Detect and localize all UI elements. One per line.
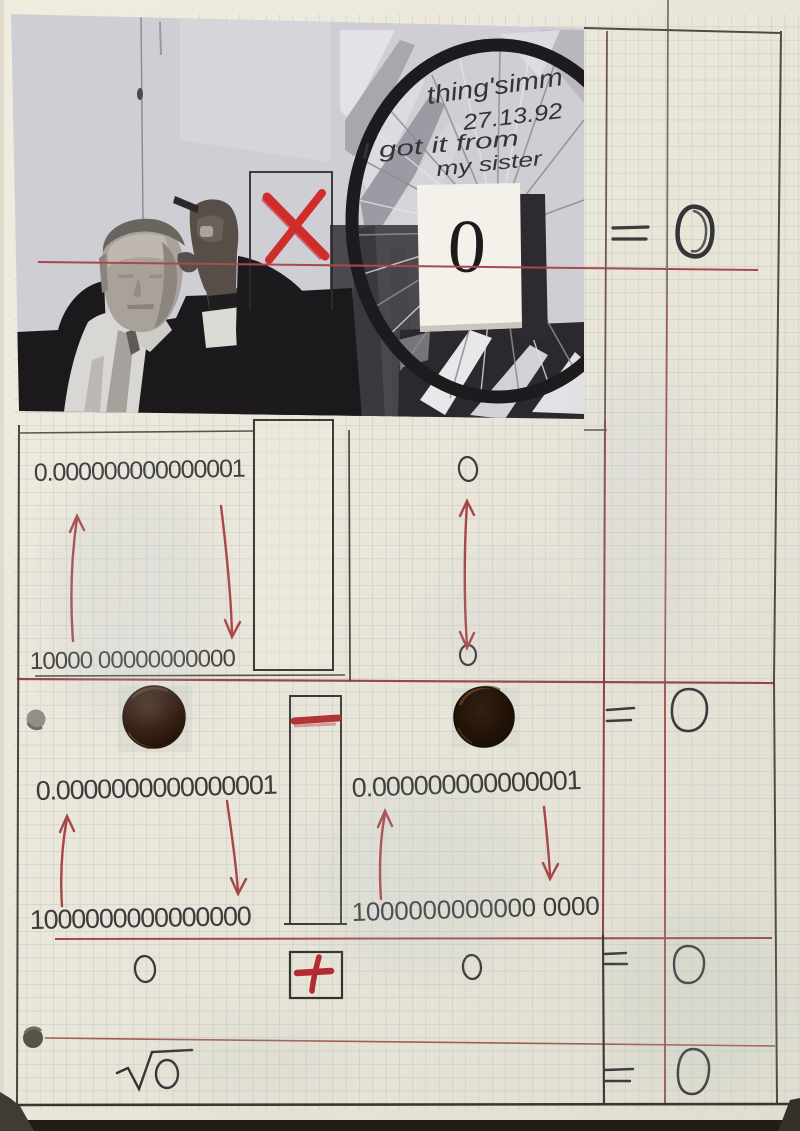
svg-text:1000000000000000: 1000000000000000 xyxy=(30,901,252,935)
svg-text:0.0000000000000001: 0.0000000000000001 xyxy=(35,770,278,806)
svg-text:0: 0 xyxy=(446,204,487,289)
